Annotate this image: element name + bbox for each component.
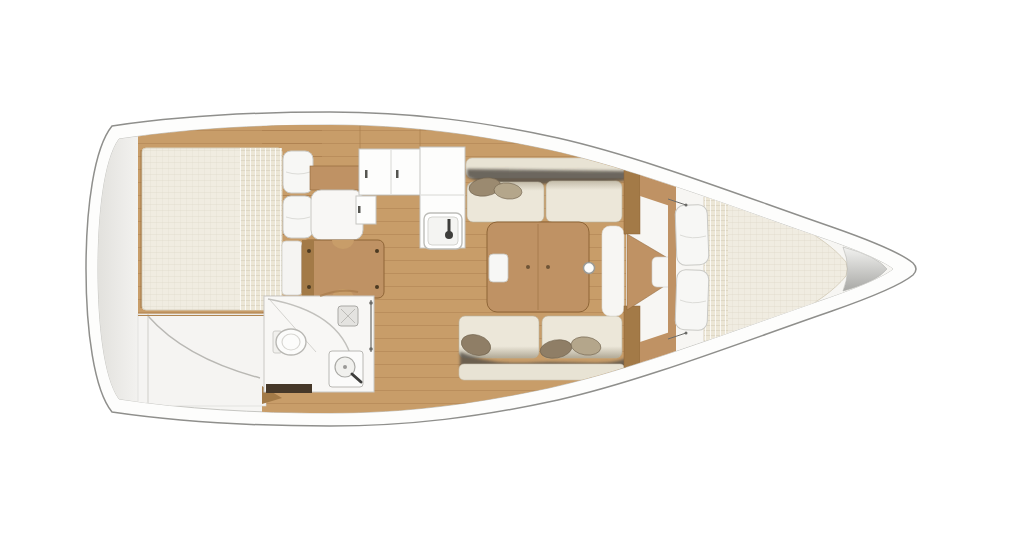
salon-table-hinge-1 [526, 265, 530, 269]
head-dark-floor [266, 384, 312, 393]
floor-plan-canvas [0, 0, 1024, 546]
port-settee-cushion-2 [546, 181, 622, 222]
lee-cloth-cord-top-end [685, 204, 688, 207]
sail-locker-panel [138, 314, 266, 406]
galley-fridge-handle [358, 206, 361, 213]
galley-handle-2 [396, 170, 399, 178]
lee-cloth-cord-bottom-end [685, 332, 688, 335]
salon-table-bottle-holder [489, 254, 508, 282]
chart-table-hinge-3 [375, 249, 379, 253]
aft-bedside-shelf [282, 241, 302, 295]
galley-faucet-base [445, 231, 453, 239]
walkway-step [602, 226, 624, 316]
boat-floor-plan [0, 0, 1024, 546]
head-door-hinge-2 [369, 347, 373, 351]
nav-seat-back [310, 166, 364, 190]
salon-table-hinge-2 [546, 265, 550, 269]
nav-seat-cushion [311, 190, 363, 240]
aft-berth-blanket [240, 148, 282, 310]
chart-table-edge [302, 240, 314, 298]
head-basin-drain [343, 365, 347, 369]
chart-table-hinge-4 [375, 285, 379, 289]
toilet-bowl [276, 329, 306, 355]
galley-handle-1 [365, 170, 368, 178]
galley-sink-basin [428, 217, 458, 245]
head-door-hinge-1 [369, 301, 373, 305]
chart-table-hinge-1 [307, 249, 311, 253]
mast-post [584, 263, 595, 274]
chart-table-hinge-2 [307, 285, 311, 289]
